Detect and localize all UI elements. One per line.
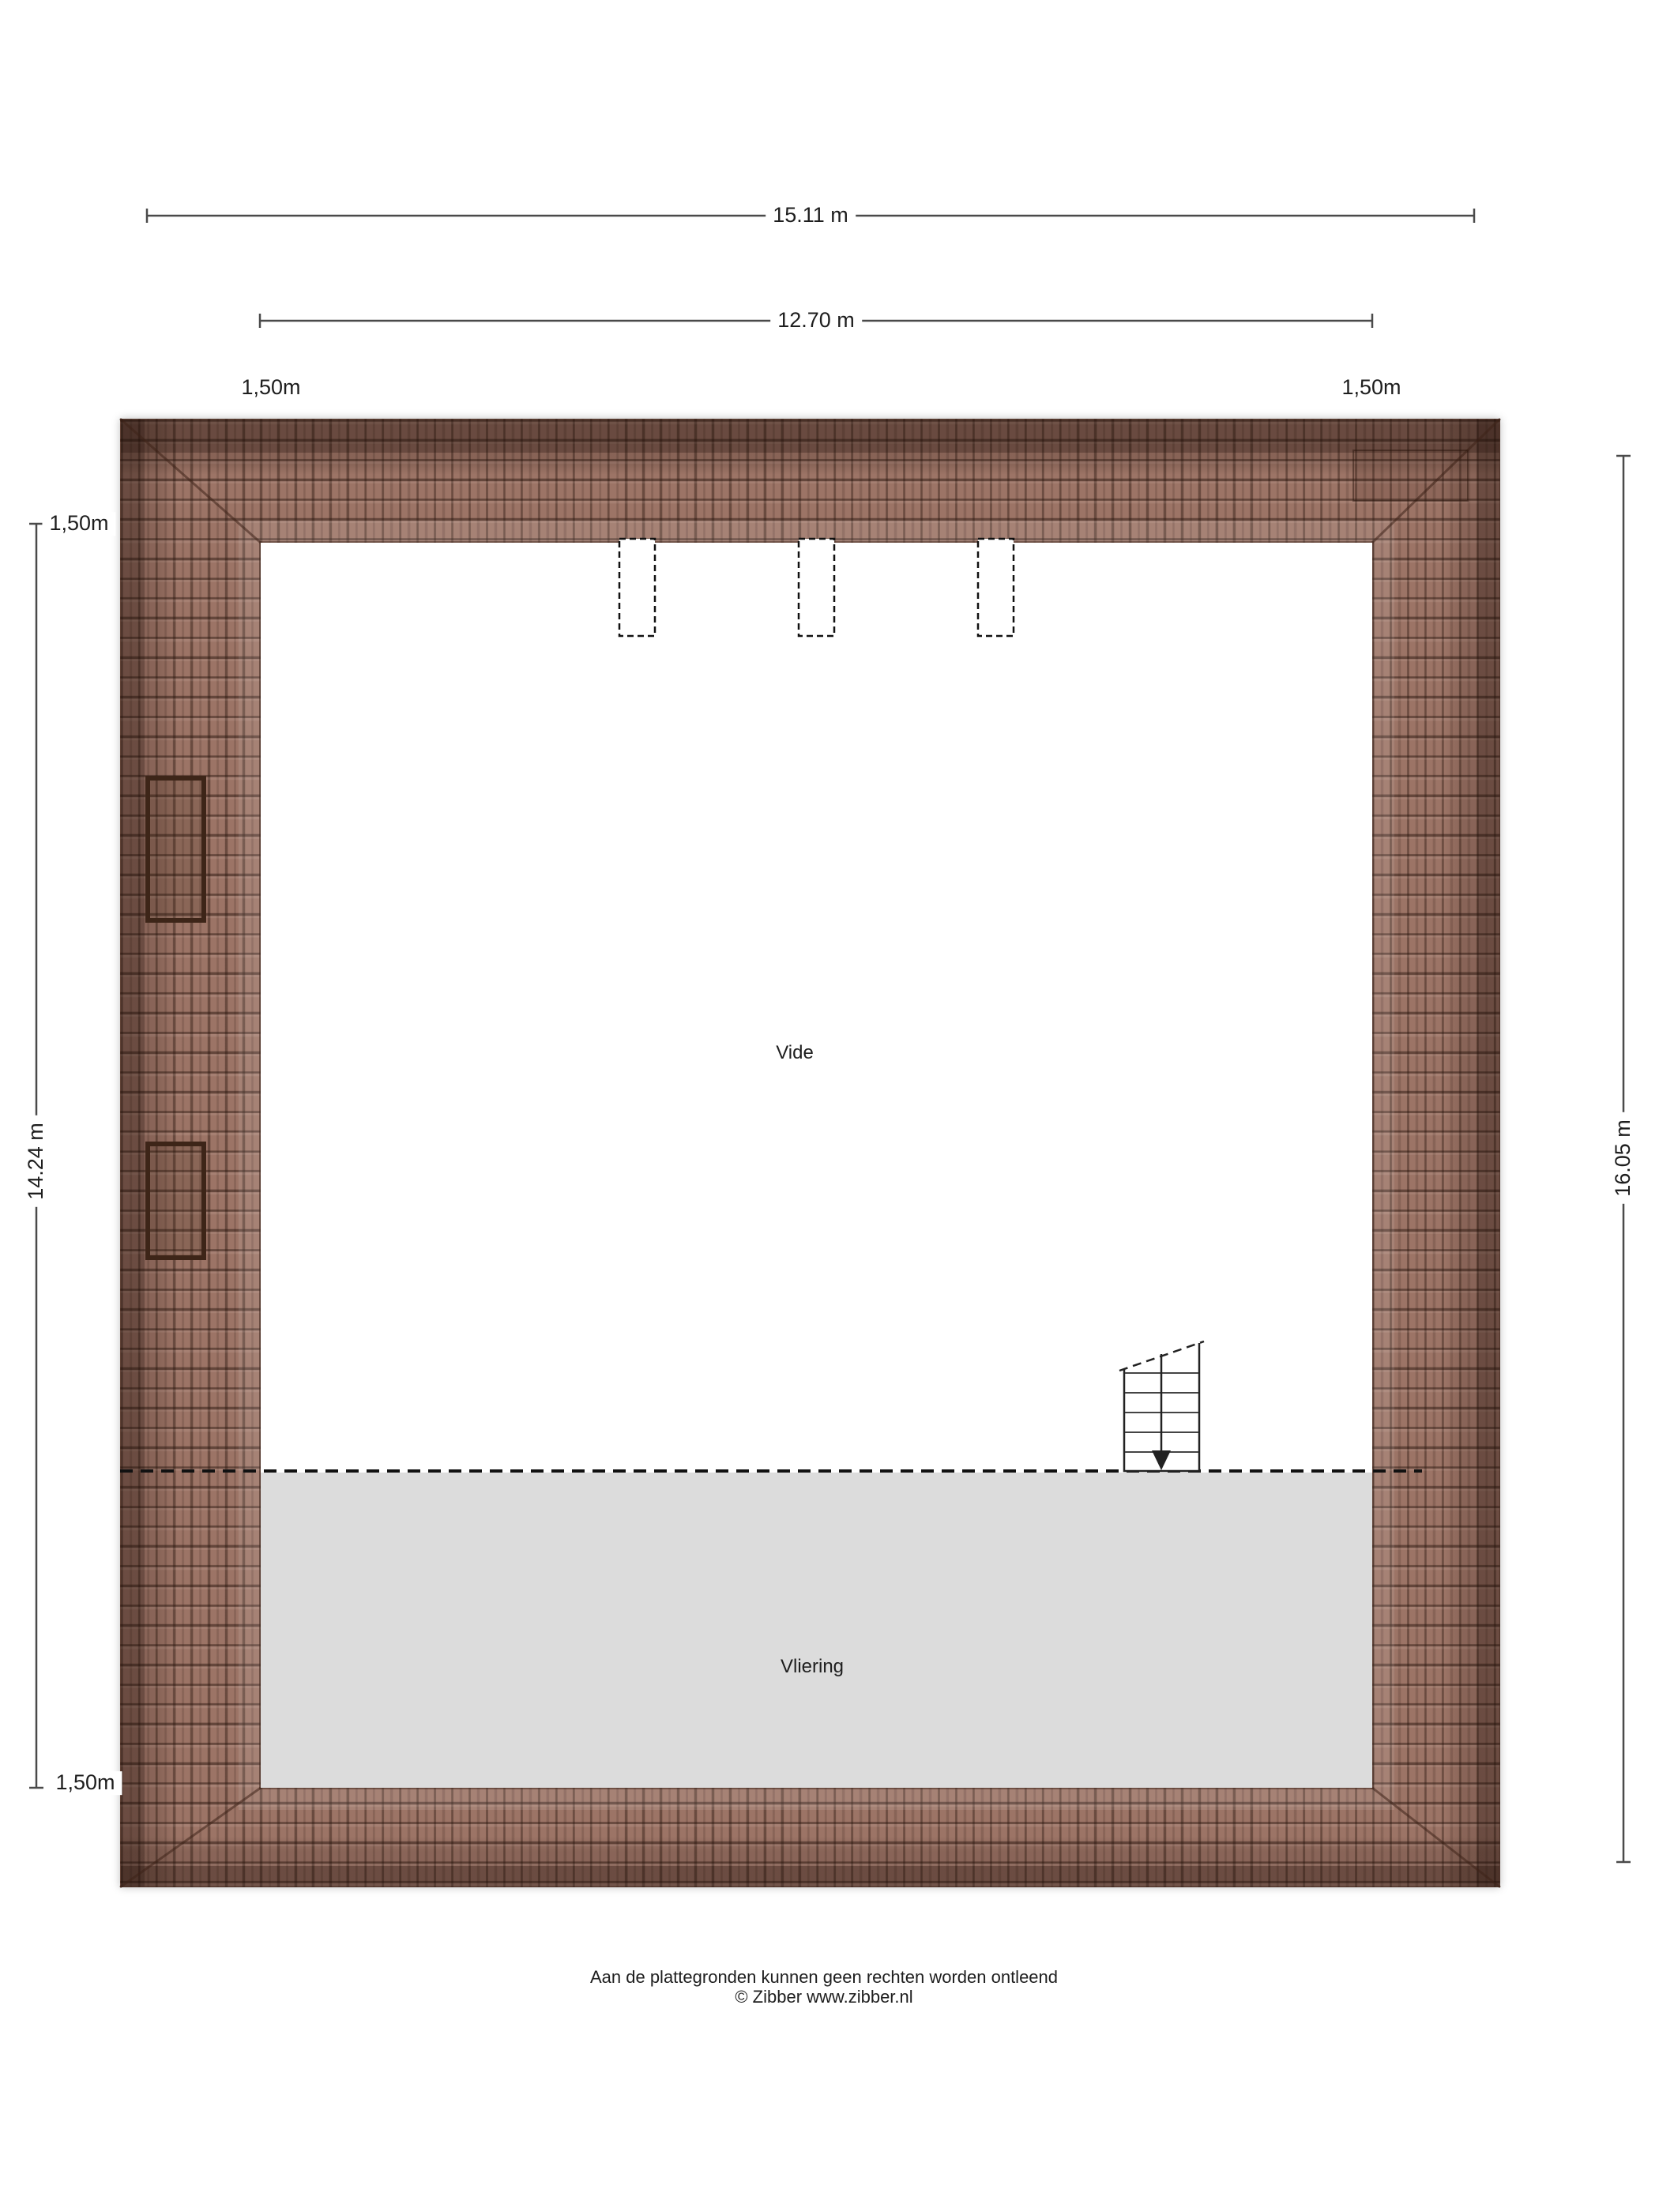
staircase — [1119, 1341, 1204, 1471]
hip-line-bottom-left — [120, 1788, 261, 1887]
dimension-label-offset-left-upper: 1,50m — [42, 512, 115, 536]
hip-line-top-left — [120, 419, 261, 543]
room-label-vliering: Vliering — [781, 1657, 844, 1677]
floorplan-page: 15.11 m 12.70 m 1,50m 1,50m 1,50m 14.24 … — [0, 0, 1659, 2212]
dimension-label-height-left: 14.24 m — [24, 1115, 48, 1207]
roof-window-upper — [148, 778, 204, 920]
footer-credit: © Zibber www.zibber.nl — [735, 1988, 912, 2007]
dimension-label-inner-width: 12.70 m — [770, 309, 862, 333]
dimension-label-height-right: 16.05 m — [1612, 1112, 1635, 1204]
skylight-opening-3 — [978, 539, 1014, 636]
skylight-opening-1 — [619, 539, 655, 636]
dimension-label-offset-left-lower: 1,50m — [48, 1771, 122, 1795]
footer-disclaimer: Aan de plattegronden kunnen geen rechten… — [590, 1968, 1058, 1987]
roof-step-notch — [1353, 450, 1468, 501]
skylight-opening-2 — [799, 539, 834, 636]
dimension-label-offset-top-right: 1,50m — [1334, 376, 1408, 400]
dimension-label-total-width: 15.11 m — [766, 204, 856, 228]
skylight-openings — [619, 539, 1014, 636]
hip-line-bottom-right — [1372, 1788, 1500, 1887]
room-label-vide: Vide — [776, 1043, 814, 1063]
roof-windows-left — [148, 778, 204, 1258]
roof-window-lower — [148, 1144, 204, 1258]
dimension-label-offset-top-left: 1,50m — [234, 376, 307, 400]
